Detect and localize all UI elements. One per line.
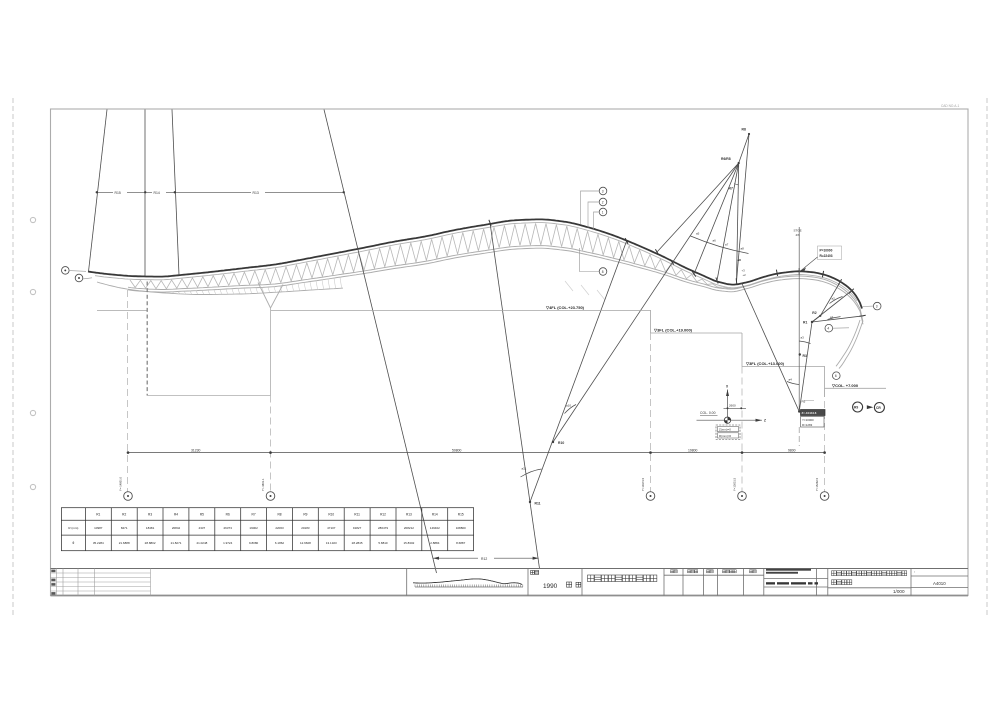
svg-text:20183: 20183 bbox=[301, 526, 310, 530]
svg-text:Y=-4801.1: Y=-4801.1 bbox=[261, 478, 265, 491]
svg-text:+3: +3 bbox=[742, 269, 746, 273]
svg-text:8471: 8471 bbox=[121, 526, 128, 530]
svg-text:2.8884: 2.8884 bbox=[430, 541, 440, 545]
svg-text:R12: R12 bbox=[481, 557, 487, 561]
svg-text:4/6: 4/6 bbox=[796, 233, 801, 237]
svg-text:R11: R11 bbox=[354, 513, 360, 517]
svg-text:10987: 10987 bbox=[94, 526, 103, 530]
svg-text:21.6888: 21.6888 bbox=[119, 541, 130, 545]
svg-text:3: 3 bbox=[602, 189, 604, 193]
svg-text:R3: R3 bbox=[148, 513, 152, 517]
svg-text:CAD NO.A-1: CAD NO.A-1 bbox=[941, 104, 959, 108]
svg-text:13.1323: 13.1323 bbox=[326, 541, 337, 545]
svg-text:1.9724: 1.9724 bbox=[223, 541, 233, 545]
svg-text:R14: R14 bbox=[154, 191, 160, 195]
svg-text:6: 6 bbox=[835, 374, 837, 378]
svg-text:20842: 20842 bbox=[172, 526, 181, 530]
svg-text:R4: R4 bbox=[174, 513, 178, 517]
svg-text:R12: R12 bbox=[380, 513, 386, 517]
svg-text:19800: 19800 bbox=[688, 448, 698, 452]
svg-text:R8: R8 bbox=[742, 128, 746, 132]
svg-text:R=22403: R=22403 bbox=[820, 254, 833, 258]
svg-text:R(mm)=0: R(mm)=0 bbox=[719, 434, 732, 438]
svg-text:R5: R5 bbox=[200, 513, 204, 517]
svg-text:22063: 22063 bbox=[275, 526, 284, 530]
svg-text:2: 2 bbox=[602, 200, 604, 204]
svg-text:1/000: 1/000 bbox=[893, 589, 905, 594]
svg-text:28.2845: 28.2845 bbox=[352, 541, 363, 545]
svg-text:R7: R7 bbox=[729, 187, 733, 191]
svg-text:108800: 108800 bbox=[456, 526, 466, 530]
svg-text:Y=10373.5: Y=10373.5 bbox=[641, 477, 645, 491]
svg-text:R2: R2 bbox=[122, 513, 126, 517]
svg-text:31230: 31230 bbox=[191, 448, 201, 452]
svg-text:R=1283: R=1283 bbox=[802, 423, 813, 427]
svg-text:4337: 4337 bbox=[199, 526, 206, 530]
svg-text:6.1862: 6.1862 bbox=[275, 541, 285, 545]
svg-text:Z=-10444.6: Z=-10444.6 bbox=[802, 411, 817, 415]
svg-text:a10: a10 bbox=[566, 404, 571, 408]
svg-text:a3: a3 bbox=[801, 336, 805, 340]
svg-text:STGE: STGE bbox=[794, 229, 802, 233]
svg-text:θ: θ bbox=[73, 541, 75, 545]
svg-text:5.8810: 5.8810 bbox=[378, 541, 388, 545]
svg-text:COL. 0.00: COL. 0.00 bbox=[700, 411, 716, 415]
svg-text:15.8302: 15.8302 bbox=[403, 541, 414, 545]
svg-text:12.6608: 12.6608 bbox=[300, 541, 311, 545]
svg-text:1: 1 bbox=[602, 210, 604, 214]
svg-text:▽3FL (COL.+19.000): ▽3FL (COL.+19.000) bbox=[653, 328, 693, 333]
svg-text:R9: R9 bbox=[854, 406, 858, 410]
svg-text:4: 4 bbox=[827, 327, 829, 331]
svg-text:Y=10000: Y=10000 bbox=[802, 418, 814, 422]
svg-text:21.0248: 21.0248 bbox=[196, 541, 207, 545]
svg-text:R10: R10 bbox=[558, 441, 564, 445]
svg-text:R11: R11 bbox=[535, 502, 541, 506]
svg-text:R3: R3 bbox=[803, 354, 807, 358]
svg-text:2600: 2600 bbox=[729, 403, 736, 407]
svg-text:286479: 286479 bbox=[378, 526, 388, 530]
svg-text:Z(mm)=0: Z(mm)=0 bbox=[719, 428, 731, 432]
svg-text:Y=-14801.0: Y=-14801.0 bbox=[119, 477, 123, 491]
svg-text:R15: R15 bbox=[115, 191, 121, 195]
svg-text:35.2284: 35.2284 bbox=[93, 541, 104, 545]
svg-text:▽COL. +7.000: ▽COL. +7.000 bbox=[831, 383, 859, 388]
svg-text:R15: R15 bbox=[458, 513, 464, 517]
svg-text:R13: R13 bbox=[253, 191, 259, 195]
svg-text:Y=15282.5: Y=15282.5 bbox=[815, 477, 819, 491]
svg-text:R10: R10 bbox=[328, 513, 334, 517]
svg-text:8: 8 bbox=[602, 270, 604, 274]
svg-text:R7: R7 bbox=[252, 513, 256, 517]
svg-text:a1: a1 bbox=[830, 315, 834, 319]
svg-text:a6: a6 bbox=[713, 239, 717, 243]
svg-text:21.8271: 21.8271 bbox=[171, 541, 182, 545]
svg-text:a11: a11 bbox=[522, 467, 527, 471]
svg-text:▽4FL (COL.+23.750): ▽4FL (COL.+23.750) bbox=[545, 305, 585, 310]
svg-text:3: 3 bbox=[876, 304, 878, 308]
svg-text:R6: R6 bbox=[226, 513, 230, 517]
svg-text:91827: 91827 bbox=[353, 526, 362, 530]
svg-text:R1: R1 bbox=[96, 513, 100, 517]
svg-text:26373: 26373 bbox=[224, 526, 233, 530]
svg-text:a4: a4 bbox=[789, 378, 793, 382]
svg-text:*: * bbox=[914, 571, 916, 575]
svg-text:P=10000: P=10000 bbox=[820, 249, 833, 253]
svg-text:R1: R1 bbox=[803, 321, 807, 325]
svg-text:28.8802: 28.8802 bbox=[145, 541, 156, 545]
svg-text:a2: a2 bbox=[832, 297, 836, 301]
svg-text:18481: 18481 bbox=[146, 526, 155, 530]
svg-text:a8: a8 bbox=[741, 247, 745, 251]
svg-text:149402: 149402 bbox=[430, 526, 440, 530]
svg-text:a7: a7 bbox=[725, 243, 729, 247]
svg-text:CR: CR bbox=[876, 406, 881, 410]
svg-text:X: X bbox=[726, 385, 729, 389]
svg-text:R (mm): R (mm) bbox=[68, 526, 78, 530]
svg-text:9800: 9800 bbox=[788, 448, 796, 452]
svg-text:R2: R2 bbox=[812, 311, 816, 315]
svg-text:1990: 1990 bbox=[543, 583, 558, 590]
svg-text:50800: 50800 bbox=[452, 448, 462, 452]
svg-text:208212: 208212 bbox=[404, 526, 414, 530]
svg-text:a8: a8 bbox=[738, 258, 742, 262]
svg-text:9.8080: 9.8080 bbox=[249, 541, 259, 545]
svg-text:R9: R9 bbox=[303, 513, 307, 517]
svg-text:R13: R13 bbox=[406, 513, 412, 517]
svg-text:Z: Z bbox=[764, 419, 766, 423]
svg-text:+2: +2 bbox=[743, 273, 747, 277]
svg-text:R5: R5 bbox=[802, 400, 806, 404]
svg-text:8.6887: 8.6887 bbox=[456, 541, 466, 545]
svg-text:A4010: A4010 bbox=[933, 581, 946, 586]
svg-text:47107: 47107 bbox=[327, 526, 336, 530]
svg-text:R14: R14 bbox=[432, 513, 438, 517]
svg-text:R8: R8 bbox=[277, 513, 281, 517]
svg-text:a5: a5 bbox=[696, 232, 700, 236]
svg-text:Y=13031.5: Y=13031.5 bbox=[733, 477, 737, 491]
svg-text:19002: 19002 bbox=[249, 526, 258, 530]
svg-text:R6/R8: R6/R8 bbox=[721, 157, 731, 161]
